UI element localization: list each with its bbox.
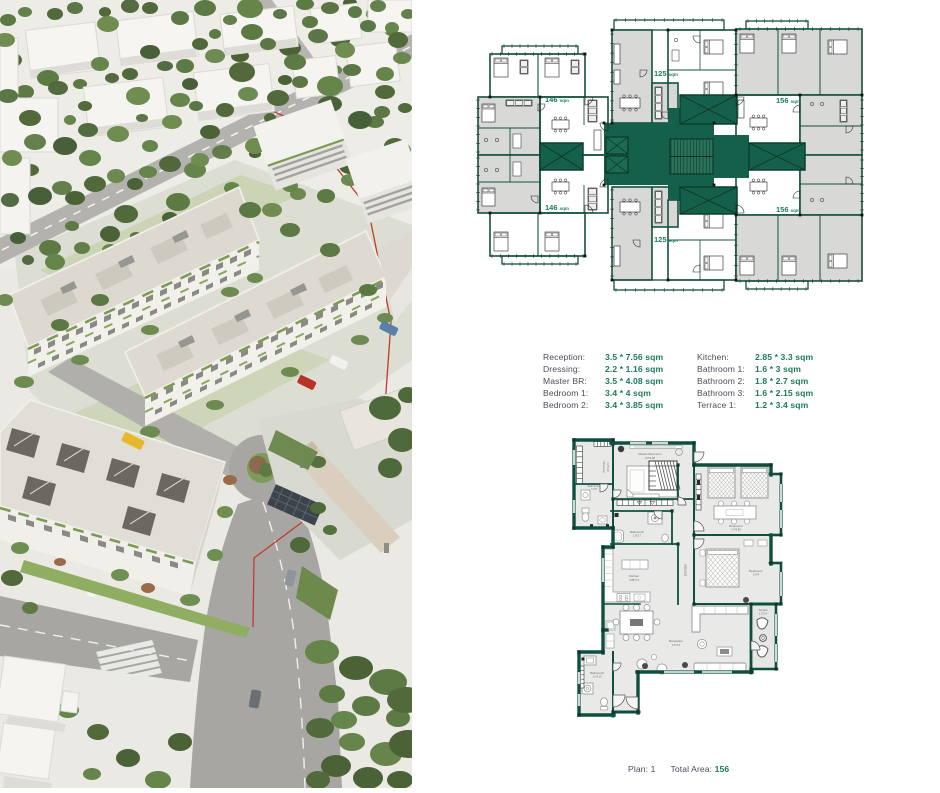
svg-text:Bedroom1: Bedroom1 [749,569,763,573]
svg-text:1.8*2.7: 1.8*2.7 [633,535,642,538]
svg-text:125 sqm: 125 sqm [654,235,678,244]
svg-text:3.5*4.08: 3.5*4.08 [645,456,656,460]
svg-text:Kitchen: Kitchen [629,574,640,578]
svg-text:Dressing: Dressing [602,461,606,472]
svg-text:3.4*3.85: 3.4*3.85 [731,528,741,532]
svg-text:Bathroom2: Bathroom2 [630,530,644,534]
svg-text:Bathroom3: Bathroom3 [590,671,604,675]
svg-text:156 sqm: 156 sqm [776,205,800,214]
svg-text:1.6*2.15: 1.6*2.15 [592,676,602,679]
svg-text:156 sqm: 156 sqm [776,96,800,105]
svg-text:3.4*4: 3.4*4 [753,573,760,577]
svg-text:3.5*7.6: 3.5*7.6 [672,643,681,647]
svg-text:2.85*3.3: 2.85*3.3 [629,578,639,582]
svg-text:Master Bed room: Master Bed room [638,452,662,456]
svg-text:Reception: Reception [669,639,683,643]
svg-text:Terrace: Terrace [758,608,768,612]
svg-text:1.6*3: 1.6*3 [591,488,597,491]
svg-text:Corridor: Corridor [684,563,688,576]
svg-text:146 sqm: 146 sqm [545,203,569,212]
svg-text:1.2*3.4: 1.2*3.4 [759,613,768,616]
svg-text:Bedroom2: Bedroom2 [729,524,743,528]
svg-text:2.2*1.16: 2.2*1.16 [606,462,609,472]
